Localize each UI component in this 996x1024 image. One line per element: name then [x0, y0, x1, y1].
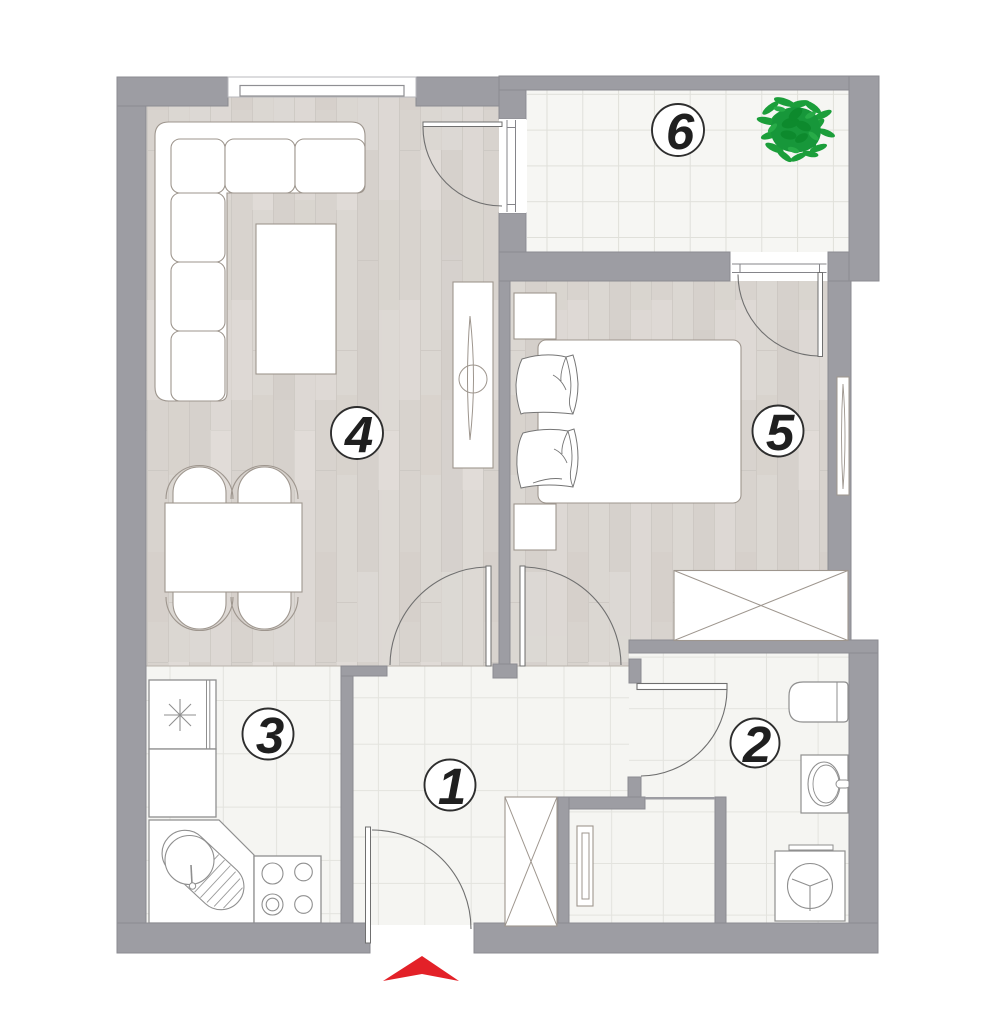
svg-text:6: 6: [666, 103, 695, 160]
svg-text:5: 5: [766, 404, 795, 461]
svg-text:4: 4: [344, 406, 373, 463]
svg-text:3: 3: [256, 707, 284, 764]
svg-text:2: 2: [742, 716, 771, 773]
svg-text:1: 1: [438, 758, 466, 815]
